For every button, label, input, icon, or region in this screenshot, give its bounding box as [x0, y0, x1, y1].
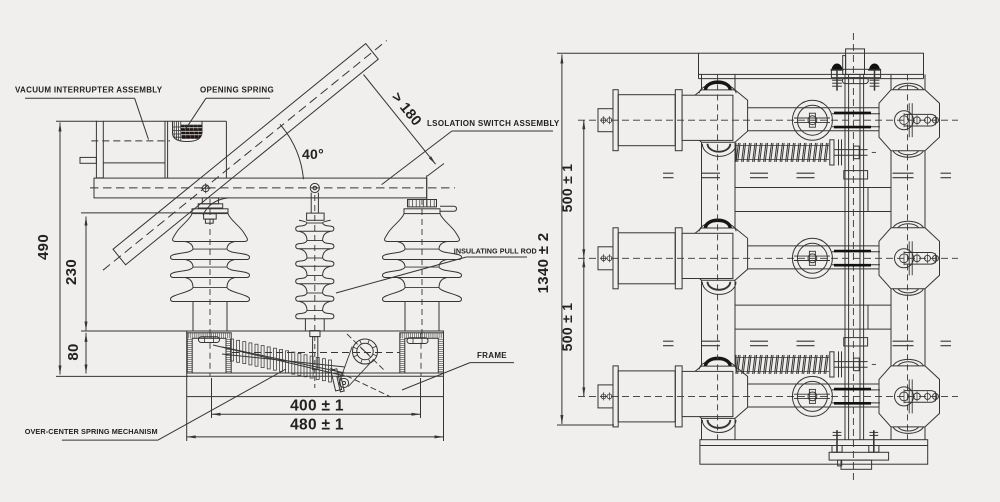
svg-text:1340 ± 2: 1340 ± 2: [535, 233, 552, 294]
svg-text:FRAME: FRAME: [477, 351, 507, 360]
svg-text:OPENING SPRING: OPENING SPRING: [200, 86, 274, 95]
svg-text:500 ± 1: 500 ± 1: [559, 164, 575, 213]
svg-text:OVER-CENTER SPRING MECHANISM: OVER-CENTER SPRING MECHANISM: [25, 427, 158, 436]
svg-text:500 ± 1: 500 ± 1: [559, 303, 575, 352]
svg-text:INSULATING PULL ROD: INSULATING PULL ROD: [454, 246, 537, 255]
svg-text:480 ± 1: 480 ± 1: [290, 417, 344, 434]
svg-text:400 ± 1: 400 ± 1: [290, 398, 344, 415]
svg-text:40°: 40°: [302, 146, 324, 162]
svg-text:490: 490: [35, 234, 52, 260]
svg-text:LSOLATION SWITCH ASSEMBLY: LSOLATION SWITCH ASSEMBLY: [427, 119, 560, 128]
svg-text:230: 230: [63, 259, 80, 285]
svg-text:VACUUM INTERRUPTER ASSEMBLY: VACUUM INTERRUPTER ASSEMBLY: [15, 86, 163, 95]
svg-text:80: 80: [65, 343, 82, 360]
